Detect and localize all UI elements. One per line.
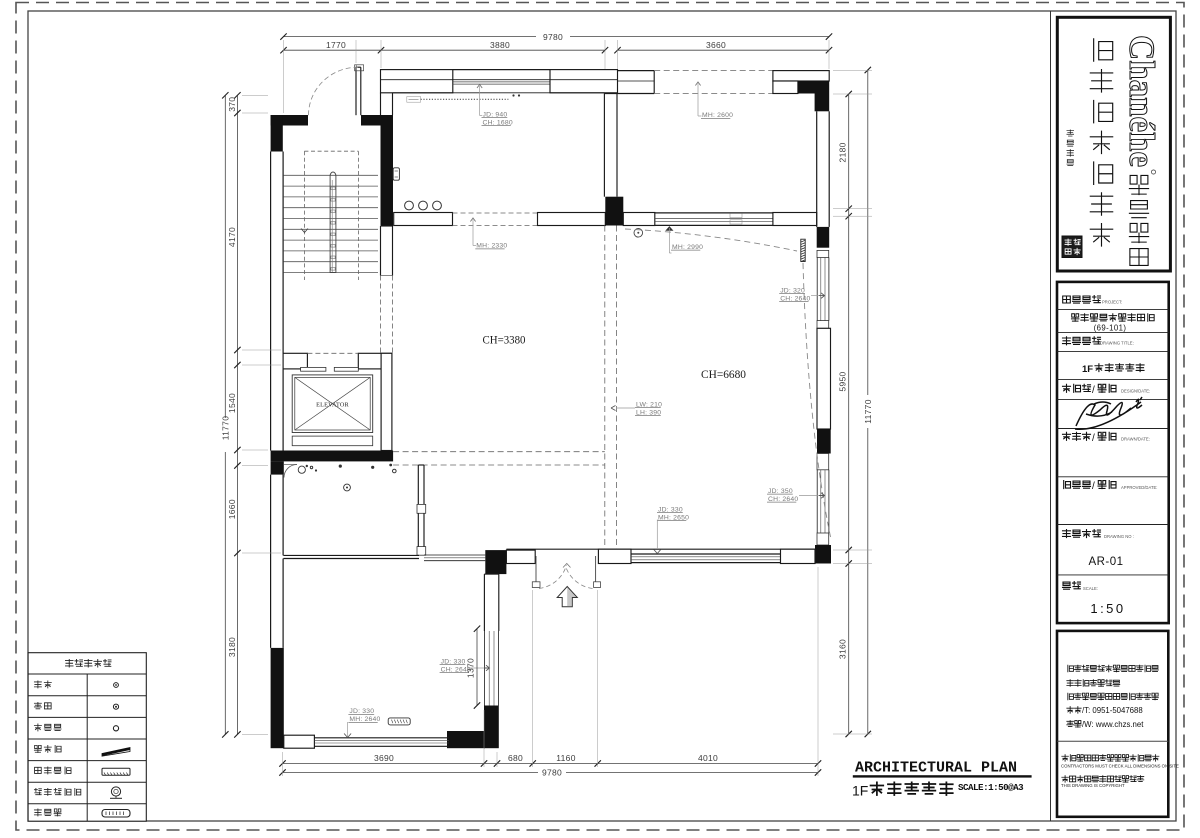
svg-text:/: / — [1092, 433, 1095, 444]
svg-text:9780: 9780 — [543, 32, 563, 42]
svg-text:5950: 5950 — [838, 371, 848, 391]
svg-text:3660: 3660 — [706, 40, 726, 50]
svg-text:APPROVED/DATE:: APPROVED/DATE: — [1121, 485, 1157, 490]
svg-text:11770: 11770 — [221, 416, 231, 441]
svg-text:1F: 1F — [852, 783, 868, 799]
svg-text:(69-101): (69-101) — [1094, 324, 1127, 333]
svg-text:1:50: 1:50 — [1090, 601, 1125, 616]
svg-text:1F: 1F — [1082, 364, 1093, 375]
svg-text:CH=3380: CH=3380 — [483, 333, 526, 347]
svg-text:3880: 3880 — [490, 40, 510, 50]
svg-text:CONTRACTORS MUST CHECK ALL DIM: CONTRACTORS MUST CHECK ALL DIMENSIONS ON… — [1061, 764, 1179, 769]
svg-text:DESIGN/DATE:: DESIGN/DATE: — [1121, 389, 1150, 394]
svg-text:DRAWING NO :: DRAWING NO : — [1104, 534, 1134, 539]
svg-text:AR-01: AR-01 — [1088, 556, 1123, 568]
svg-text:PROJECT:: PROJECT: — [1102, 300, 1122, 305]
svg-text:Chanéhe: Chanéhe — [1122, 35, 1162, 167]
svg-text:/: / — [1092, 481, 1095, 492]
svg-text:CH=6680: CH=6680 — [701, 367, 746, 381]
svg-text:3160: 3160 — [838, 639, 848, 659]
svg-text:3690: 3690 — [374, 753, 394, 763]
svg-text:1370: 1370 — [466, 658, 476, 678]
svg-text:1160: 1160 — [556, 753, 575, 763]
svg-text:MH: 2600: MH: 2600 — [702, 112, 733, 119]
svg-text:4010: 4010 — [698, 753, 718, 763]
svg-text:ARCHITECTURAL PLAN: ARCHITECTURAL PLAN — [855, 760, 1017, 777]
svg-text:11770: 11770 — [863, 399, 873, 424]
svg-text:4170: 4170 — [227, 227, 237, 247]
svg-text:2180: 2180 — [838, 142, 848, 162]
svg-text:1660: 1660 — [227, 499, 237, 519]
svg-text:SCALE:: SCALE: — [1083, 586, 1098, 591]
svg-text:1540: 1540 — [227, 393, 237, 413]
svg-text:1770: 1770 — [326, 40, 346, 50]
svg-text:680: 680 — [508, 753, 523, 763]
svg-text:370: 370 — [227, 97, 237, 112]
svg-text:THIS DRAWING IS COPYRIGHT: THIS DRAWING IS COPYRIGHT — [1061, 783, 1125, 788]
svg-text:9780: 9780 — [542, 768, 562, 778]
svg-text:/: / — [1092, 385, 1095, 396]
svg-text:DRAWN/DATE:: DRAWN/DATE: — [1121, 437, 1150, 442]
svg-text:ELEVATOR: ELEVATOR — [316, 402, 349, 409]
svg-text:/T: 0951-5047688: /T: 0951-5047688 — [1082, 706, 1143, 715]
svg-text:/W: www.chzs.net: /W: www.chzs.net — [1082, 720, 1144, 729]
svg-text:SCALE:1:50@A3: SCALE:1:50@A3 — [958, 782, 1024, 793]
svg-text:3180: 3180 — [227, 637, 237, 657]
svg-text:DRAWING TITLE:: DRAWING TITLE: — [1100, 341, 1134, 346]
